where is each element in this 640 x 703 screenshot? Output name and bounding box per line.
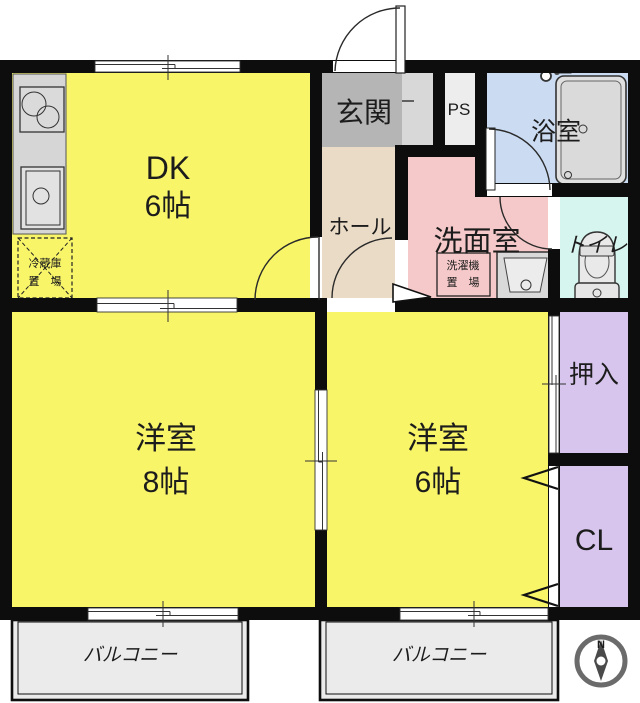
label-hall: ホール [329, 216, 392, 239]
label-entry: 玄関 [336, 97, 392, 128]
compass-north-label: N [597, 639, 605, 651]
label-dk-size: 6帖 [145, 190, 192, 223]
dk-door-opening [310, 237, 322, 298]
label-oshiire: 押入 [569, 361, 619, 389]
label-bath: 浴室 [531, 118, 581, 146]
room-west8-floor [12, 312, 315, 607]
wall-under-entry [395, 145, 487, 157]
wall-entry-ps [433, 73, 445, 157]
label-balcony-left: バルコニー [83, 645, 179, 666]
entry-door-opening [333, 61, 401, 72]
toilet-door-opening [548, 197, 560, 249]
vanity-icon [497, 252, 553, 300]
label-washroom: 洗面室 [433, 225, 520, 258]
label-west6: 洋室 [407, 421, 469, 456]
label-west8: 洋室 [135, 421, 197, 456]
washer-label-line2: 置 場 [447, 276, 480, 289]
label-ps: PS [448, 100, 471, 119]
label-dk: DK [146, 150, 190, 186]
sink-icon [21, 167, 64, 229]
label-west6-size: 6帖 [415, 466, 462, 499]
label-cl: CL [575, 524, 613, 557]
fridge-label-line1: 冷蔵庫 [29, 256, 62, 270]
bath-door-opening [487, 184, 552, 196]
stove-icon [20, 87, 64, 132]
wall-right [628, 60, 640, 620]
washer-label-line1: 洗濯機 [447, 258, 480, 272]
entry-step [402, 73, 433, 147]
fridge-label-line2: 置 場 [29, 275, 62, 288]
hall-west6-opening [327, 298, 395, 312]
compass-icon: N [577, 637, 625, 685]
label-toilet: トイレ [565, 234, 628, 257]
label-west8-size: 8帖 [143, 466, 190, 499]
wall-left [0, 60, 12, 620]
room-west6-floor [327, 312, 548, 607]
label-balcony-right: バルコニー [392, 645, 488, 666]
wall-oshiire-cl [548, 453, 640, 466]
entry-door-leaf [396, 6, 405, 73]
kitchen-counter-icon [13, 74, 66, 234]
bath-door-leaf [486, 128, 495, 190]
wall-ps-bath [475, 73, 487, 197]
floorplan: 冷蔵庫 置 場 洗濯機 置 場 [0, 0, 640, 703]
